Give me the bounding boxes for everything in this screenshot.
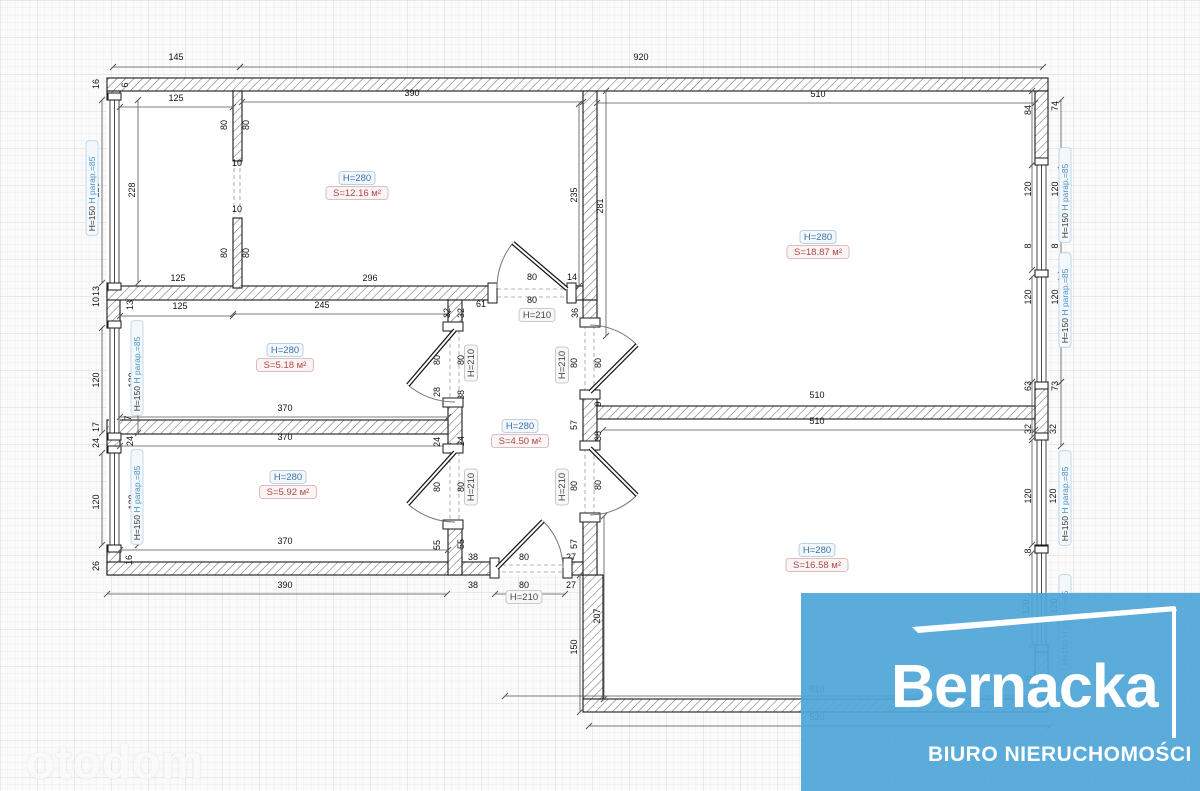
svg-text:74: 74 (1050, 101, 1060, 111)
window-end-block (1035, 382, 1048, 389)
dim-text: 17 (91, 422, 101, 432)
dim-text: 80 (241, 120, 251, 130)
svg-text:80: 80 (219, 120, 229, 130)
dim-text: 24 (432, 437, 442, 447)
dim-text: 38 (468, 580, 478, 590)
svg-text:7: 7 (123, 415, 133, 420)
svg-text:57: 57 (569, 539, 579, 549)
room-height-label: H=280 (267, 344, 303, 357)
dim-text: 32 (442, 308, 452, 318)
svg-text:38: 38 (468, 580, 478, 590)
window-height-label: H=150 H parap.=85 (131, 450, 143, 545)
dim-text: 24 (91, 438, 101, 448)
svg-text:H=280: H=280 (803, 545, 831, 556)
dim-text: 28 (432, 387, 442, 397)
svg-text:38: 38 (593, 431, 603, 441)
floor-plan-page: 1459201253901010125296510125245618014801… (0, 0, 1200, 791)
svg-text:73: 73 (1050, 381, 1060, 391)
svg-text:80: 80 (527, 295, 537, 305)
svg-text:150: 150 (569, 639, 579, 654)
dim-text: 7 (123, 415, 133, 420)
svg-text:32: 32 (1023, 424, 1033, 434)
svg-text:510: 510 (810, 89, 825, 99)
dim-text: 120 (1048, 488, 1058, 503)
dim-text: 84 (1023, 105, 1033, 115)
room-area-label: S=4.50 м² (492, 435, 549, 448)
door-height-label: H=210 (506, 591, 542, 604)
dim-text: 55 (432, 540, 442, 550)
svg-text:S=12.16 м²: S=12.16 м² (333, 188, 381, 199)
room-area-label: S=18.87 м² (787, 246, 849, 259)
dim-text: 120 (91, 372, 101, 387)
room-area-label: S=5.18 м² (257, 359, 314, 372)
dim-text: 74 (1050, 101, 1060, 111)
dim-text: 125 (168, 93, 183, 103)
svg-text:S=4.50 м²: S=4.50 м² (499, 436, 542, 447)
room-area (107, 78, 1048, 575)
dim-text: 80 (432, 482, 442, 492)
svg-text:120: 120 (91, 372, 101, 387)
door-jamb (443, 398, 463, 407)
dim-text: 61 (476, 299, 486, 309)
dim-text: 8 (1023, 548, 1033, 553)
svg-text:80: 80 (593, 358, 603, 368)
svg-text:370: 370 (277, 536, 292, 546)
dim-text: 80 (241, 248, 251, 258)
svg-text:80: 80 (569, 358, 579, 368)
dim-text: 510 (810, 89, 825, 99)
svg-text:H=280: H=280 (804, 232, 832, 243)
dim-text: 38 (593, 431, 603, 441)
door-height-label: H=210 (556, 347, 569, 383)
dim-text: 73 (1050, 381, 1060, 391)
svg-text:120: 120 (1050, 181, 1060, 196)
wall (1035, 382, 1048, 440)
window-end-block (108, 93, 121, 100)
dim-text: 26 (91, 561, 101, 571)
svg-text:80: 80 (241, 248, 251, 258)
dim-text: 296 (362, 273, 377, 283)
svg-text:80: 80 (432, 482, 442, 492)
dim-text: 390 (404, 88, 419, 98)
dim-text: 80 (519, 552, 529, 562)
svg-text:145: 145 (168, 52, 183, 62)
dim-text: 245 (314, 300, 329, 310)
dim-text: 235 (569, 187, 579, 202)
dim-text: 13 (125, 300, 135, 310)
wall (583, 515, 597, 575)
dim-text: 80 (593, 358, 603, 368)
svg-text:36: 36 (570, 308, 580, 318)
svg-text:120: 120 (1023, 289, 1033, 304)
door-jamb (563, 558, 572, 578)
dim-text: 80 (519, 580, 529, 590)
room-height-label: H=280 (270, 471, 306, 484)
room-area-label: S=5.92 м² (260, 486, 317, 499)
svg-text:10: 10 (232, 204, 242, 214)
otodom-watermark: otodom (26, 734, 204, 789)
svg-text:8: 8 (1023, 548, 1033, 553)
window-end-block (108, 433, 121, 440)
dim-text: 32 (456, 308, 466, 318)
svg-text:120: 120 (1048, 488, 1058, 503)
dim-text: 80 (593, 480, 603, 490)
svg-text:370: 370 (277, 432, 292, 442)
dim-text: 57 (569, 420, 579, 430)
svg-text:125: 125 (170, 273, 185, 283)
door-height-label: H=210 (556, 469, 569, 505)
svg-text:26: 26 (91, 561, 101, 571)
svg-text:510: 510 (809, 390, 824, 400)
dim-text: 10 (232, 204, 242, 214)
svg-text:920: 920 (633, 52, 648, 62)
dim-text: 120 (1023, 289, 1033, 304)
window-end-block (108, 283, 121, 290)
dim-text: 80 (569, 481, 579, 491)
svg-text:27: 27 (566, 580, 576, 590)
wall (107, 562, 497, 575)
svg-text:13: 13 (91, 286, 101, 296)
dim-text: 8 (1023, 243, 1033, 248)
window-end-block (1035, 546, 1048, 553)
svg-text:80: 80 (241, 120, 251, 130)
svg-text:390: 390 (404, 88, 419, 98)
door-jamb (488, 283, 497, 303)
window-height-label: H=150 H parap.=85 (1059, 451, 1071, 546)
svg-text:61: 61 (476, 299, 486, 309)
dim-text: 120 (91, 494, 101, 509)
svg-text:24: 24 (432, 437, 442, 447)
svg-text:14: 14 (567, 272, 577, 282)
dim-text: 510 (809, 390, 824, 400)
logo-title: Bernacka (891, 651, 1158, 721)
dim-text: 120 (1023, 181, 1033, 196)
dim-text: 80 (219, 120, 229, 130)
svg-text:80: 80 (593, 480, 603, 490)
door-jamb (567, 283, 576, 303)
svg-text:H=210: H=210 (523, 310, 551, 321)
dim-text: 16 (91, 79, 101, 89)
svg-text:32: 32 (442, 308, 452, 318)
window-height-label: H=150 H parap.=85 (1059, 253, 1071, 348)
dim-text: 36 (570, 308, 580, 318)
wall (107, 78, 1048, 91)
room-height-label: H=280 (502, 420, 538, 433)
svg-text:H=210: H=210 (466, 473, 477, 501)
svg-text:H=150 H parap.=85: H=150 H parap.=85 (1060, 466, 1070, 541)
dim-text: 24 (125, 436, 135, 446)
svg-text:H=280: H=280 (506, 421, 534, 432)
dim-text: 80 (527, 295, 537, 305)
svg-text:120: 120 (91, 494, 101, 509)
wall (1035, 91, 1048, 165)
dim-text: 207 (592, 608, 602, 623)
dim-text: 150 (569, 639, 579, 654)
logo-subtitle: BIURO NIERUCHOMOŚCI (928, 743, 1192, 767)
svg-text:H=210: H=210 (557, 351, 568, 379)
wall (583, 91, 597, 300)
room-area-label: S=16.58 м² (786, 559, 848, 572)
dim-text: 38 (468, 552, 478, 562)
svg-text:125: 125 (168, 93, 183, 103)
dim-text: 13 (91, 286, 101, 296)
door-height-label: H=210 (519, 309, 555, 322)
svg-text:10: 10 (91, 297, 101, 307)
svg-text:H=150 H parap.=85: H=150 H parap.=85 (132, 336, 142, 411)
dim-text: 125 (172, 301, 187, 311)
window-end-block (1035, 433, 1048, 440)
svg-text:120: 120 (1023, 181, 1033, 196)
door-height-label: H=210 (465, 345, 478, 381)
svg-text:80: 80 (219, 248, 229, 258)
svg-text:84: 84 (1023, 105, 1033, 115)
svg-text:370: 370 (277, 403, 292, 413)
dim-text: 6 (120, 82, 130, 87)
dim-text: 63 (1023, 381, 1033, 391)
svg-text:8: 8 (1050, 243, 1060, 248)
svg-text:S=16.58 м²: S=16.58 м² (793, 560, 841, 571)
svg-text:H=280: H=280 (274, 472, 302, 483)
dim-text: 228 (127, 182, 137, 197)
svg-text:55: 55 (432, 540, 442, 550)
dim-text: 120 (1050, 289, 1060, 304)
dim-text: 390 (277, 580, 292, 590)
svg-text:13: 13 (125, 300, 135, 310)
dim-text: 370 (277, 536, 292, 546)
svg-text:H=150 H parap.=85: H=150 H parap.=85 (1060, 268, 1070, 343)
svg-text:390: 390 (277, 580, 292, 590)
svg-text:235: 235 (569, 187, 579, 202)
svg-text:80: 80 (519, 580, 529, 590)
room-height-label: H=280 (339, 172, 375, 185)
svg-text:8: 8 (1023, 243, 1033, 248)
svg-text:63: 63 (1023, 381, 1033, 391)
dim-text: 10 (232, 158, 242, 168)
dim-text: 8 (1050, 243, 1060, 248)
svg-text:57: 57 (569, 420, 579, 430)
svg-text:H=210: H=210 (510, 592, 538, 603)
dim-text: 80 (569, 358, 579, 368)
wall (583, 575, 603, 699)
svg-text:S=5.92 м²: S=5.92 м² (267, 487, 310, 498)
svg-text:245: 245 (314, 300, 329, 310)
dim-text: 14 (567, 272, 577, 282)
dim-text: 125 (170, 273, 185, 283)
svg-text:H=150 H parap.=85: H=150 H parap.=85 (1060, 163, 1070, 238)
dim-text: 281 (595, 198, 605, 213)
svg-text:32: 32 (456, 308, 466, 318)
dim-text: 57 (569, 539, 579, 549)
window-end-block (1035, 270, 1048, 277)
svg-text:H=210: H=210 (557, 473, 568, 501)
dim-text: 32 (1023, 424, 1033, 434)
svg-text:125: 125 (172, 301, 187, 311)
window-height-label: H=150 H parap.=85 (1059, 148, 1071, 243)
room-height-label: H=280 (799, 544, 835, 557)
dim-text: 55 (456, 539, 466, 549)
dim-text: 80 (219, 248, 229, 258)
window-height-label: H=150 H parap.=85 (86, 141, 98, 236)
svg-text:6: 6 (120, 82, 130, 87)
dim-text: 32 (1048, 424, 1058, 434)
svg-text:H=280: H=280 (343, 173, 371, 184)
svg-text:120: 120 (1023, 488, 1033, 503)
svg-text:228: 228 (127, 182, 137, 197)
dim-text: 80 (527, 272, 537, 282)
dim-text: 9 (593, 401, 603, 406)
room-height-label: H=280 (800, 231, 836, 244)
svg-text:281: 281 (595, 198, 605, 213)
svg-text:10: 10 (232, 158, 242, 168)
svg-text:55: 55 (456, 539, 466, 549)
svg-text:H=150 H parap.=85: H=150 H parap.=85 (87, 156, 97, 231)
svg-text:28: 28 (432, 387, 442, 397)
agency-logo-banner: Bernacka BIURO NIERUCHOMOŚCI (801, 593, 1200, 791)
dim-text: 920 (633, 52, 648, 62)
svg-text:24: 24 (125, 436, 135, 446)
svg-text:H=150 H parap.=85: H=150 H parap.=85 (132, 465, 142, 540)
svg-text:17: 17 (91, 422, 101, 432)
svg-text:296: 296 (362, 273, 377, 283)
svg-text:16: 16 (124, 555, 134, 565)
dim-text: 10 (91, 297, 101, 307)
svg-text:38: 38 (468, 552, 478, 562)
dim-text: 145 (168, 52, 183, 62)
svg-text:80: 80 (519, 552, 529, 562)
dim-text: 120 (1023, 488, 1033, 503)
wall (107, 286, 497, 300)
svg-text:9: 9 (593, 401, 603, 406)
svg-text:207: 207 (592, 608, 602, 623)
svg-text:32: 32 (1048, 424, 1058, 434)
window-end-block (108, 321, 121, 328)
svg-text:S=18.87 м²: S=18.87 м² (794, 247, 842, 258)
svg-text:16: 16 (91, 79, 101, 89)
svg-text:24: 24 (91, 438, 101, 448)
svg-text:H=210: H=210 (466, 349, 477, 377)
dim-text: 27 (566, 580, 576, 590)
dim-text: 120 (1050, 181, 1060, 196)
dim-text: 370 (277, 403, 292, 413)
dim-text: 16 (124, 555, 134, 565)
window-end-block (1035, 158, 1048, 165)
dim-text: 510 (809, 416, 824, 426)
svg-text:H=280: H=280 (271, 345, 299, 356)
svg-text:S=5.18 м²: S=5.18 м² (264, 360, 307, 371)
svg-text:120: 120 (1050, 289, 1060, 304)
dim-text: 370 (277, 432, 292, 442)
door-height-label: H=210 (465, 469, 478, 505)
svg-text:80: 80 (527, 272, 537, 282)
window-height-label: H=150 H parap.=85 (131, 321, 143, 416)
svg-text:510: 510 (809, 416, 824, 426)
svg-text:80: 80 (569, 481, 579, 491)
room-area-label: S=12.16 м² (326, 187, 388, 200)
